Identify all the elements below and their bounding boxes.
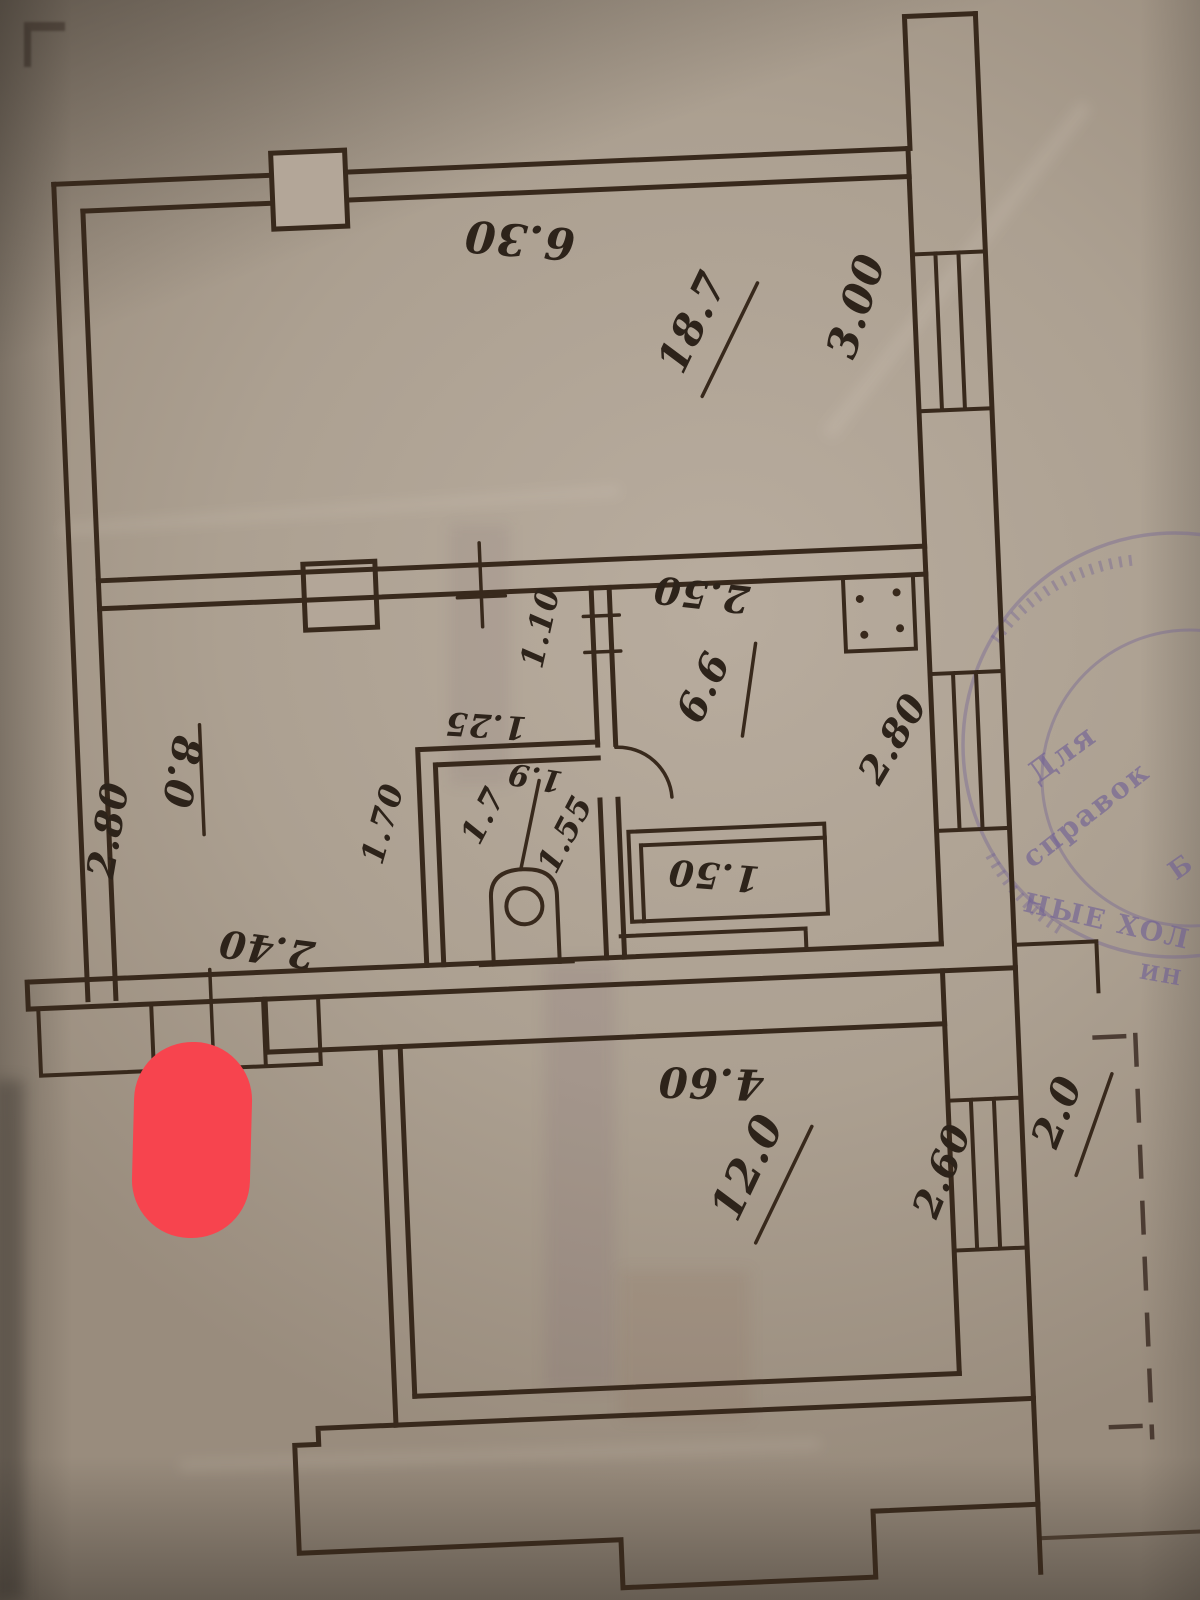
facade-bottom-right <box>1039 1530 1200 1538</box>
wall-right-outer <box>975 14 1040 1573</box>
wall-mid-horizontal <box>98 546 925 609</box>
stamp-letter: Б <box>1163 848 1200 886</box>
dim-hall-width: 1.10 <box>513 583 568 671</box>
area-room-bottom: 12.0 <box>701 1106 795 1228</box>
wall-kitchen-divider <box>591 587 624 957</box>
wall-room-bottom-left <box>380 1047 416 1426</box>
red-marker-annotation <box>130 1040 253 1239</box>
door-jamb-ticks <box>583 615 620 652</box>
dim-bath-width: 1.25 <box>444 704 528 747</box>
hall-step-riser <box>265 999 267 1052</box>
wall-bottom-band <box>27 941 1015 1009</box>
window-top-room <box>912 251 992 411</box>
stamp-arc-text-2: ИН <box>1138 959 1185 991</box>
facade-bottom <box>294 1398 1041 1600</box>
dim-top-width: 6.30 <box>462 209 577 269</box>
wall-top-outer <box>54 149 908 185</box>
dim-hall-bottom: 2.40 <box>216 921 319 979</box>
wall-top-inner <box>83 177 909 212</box>
area-bathroom: 1.7 <box>453 781 514 851</box>
dim-room-bottom-width: 4.60 <box>657 1057 765 1109</box>
partition-tick <box>455 542 506 628</box>
dim-1-55: 1.55 <box>529 789 601 879</box>
wall-room-bottom-top <box>267 1024 944 1052</box>
dim-sink: 1.50 <box>666 851 761 900</box>
dim-left-wall: 2.80 <box>77 778 138 882</box>
wall-left-outer <box>54 184 88 999</box>
dim-kitchen-window: 2.80 <box>848 685 936 792</box>
dim-window-top: 3.00 <box>816 248 895 364</box>
vent-box-top-wall <box>271 150 348 229</box>
door-arc <box>616 745 672 799</box>
dim-window-bottom: 2.60 <box>902 1117 980 1224</box>
dim-kitchen-top: 2.50 <box>651 567 753 623</box>
area-kitchen: 6.6 <box>667 644 741 730</box>
dimension-lines <box>182 270 1118 1266</box>
dim-balcony: 2.0 <box>1022 1069 1093 1155</box>
floor-plan-photo: Для справок Б НЫЕ ХОЛ ИН <box>0 0 1200 1600</box>
plan-walls-group: 6.30 18.7 3.00 2.50 6.6 2.80 1.10 1.25 1… <box>0 6 1200 1600</box>
area-room-top: 18.7 <box>647 263 737 380</box>
stove-icon <box>843 575 916 652</box>
balcony <box>1014 940 1152 1444</box>
floor-plan-drawing: Для справок Б НЫЕ ХОЛ ИН <box>0 0 1200 1600</box>
stamp-text-dlya: Для <box>1021 718 1103 791</box>
vent-shaft-column <box>904 14 980 149</box>
wall-room-bottom-bottom <box>395 1370 1034 1425</box>
dim-bath-depth: 1.70 <box>353 779 412 868</box>
